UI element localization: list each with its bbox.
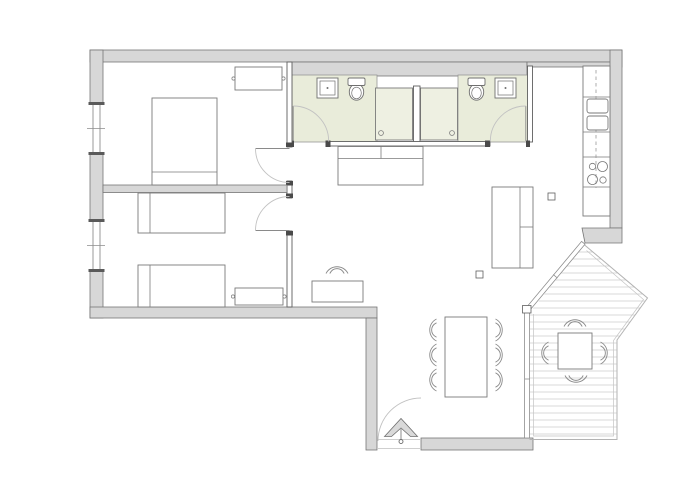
dining-chair-left-3-arc (430, 369, 437, 391)
wall-bathroom2-right (528, 66, 533, 142)
jamb-bath1-right (326, 141, 331, 148)
jamb-bedroom2-top (286, 194, 293, 199)
glass-wall-corner-post (523, 306, 532, 314)
dining-chair-left-1 (430, 319, 437, 341)
wall-bathroom-bottom (329, 142, 490, 147)
balcony-chair-top (564, 320, 586, 327)
wall-top-bathroom-block (290, 62, 527, 76)
dining-chair-left-2-arc (432, 348, 437, 362)
balcony-chair-bottom (565, 376, 587, 383)
balcony-chair-right-arc (601, 342, 608, 364)
window-bedroom2-sill-top (89, 219, 105, 222)
wall-right (610, 50, 622, 228)
dining-chair-left-1-arc (430, 319, 437, 341)
wall-bedroom-divider (103, 185, 287, 193)
wall-bottom-bedrooms (90, 307, 377, 318)
bed-single-2 (138, 265, 225, 307)
door-bedroom1-arc (256, 149, 290, 183)
sofa (338, 147, 423, 186)
kitchen-sink-basin-2 (587, 116, 608, 130)
dining-chair-left-2-arc (430, 344, 437, 366)
balcony-table (558, 333, 592, 369)
wall-top (90, 50, 622, 62)
chair-desk-living-arc (326, 267, 348, 274)
desk-living (312, 281, 363, 302)
dining-table (445, 317, 487, 397)
dining-chair-right-3-arc (496, 369, 503, 391)
dining-chair-left-3 (430, 369, 437, 391)
desk-bedroom2-knob-right (283, 295, 286, 298)
window-bedroom2-sill-bottom (89, 269, 105, 272)
dining-chair-right-2-arc (496, 348, 501, 362)
wall-bottom-living (421, 438, 533, 450)
jamb-bedroom1-top (286, 143, 293, 148)
desk-bedroom1-knob-right (282, 77, 285, 80)
wall-hall-upper (287, 62, 292, 147)
toilet1-tank (348, 78, 365, 86)
desk-bedroom1 (235, 67, 282, 90)
jamb-bath2-left (485, 141, 490, 148)
floor-marker-2 (476, 271, 483, 278)
toilet2-tank (468, 78, 485, 86)
dining-chair-right-3-arc (496, 373, 501, 387)
kitchen-sink-basin-1 (587, 99, 608, 113)
jamb-bedroom2-bottom (286, 231, 293, 236)
dining-chair-right-2-arc (496, 344, 503, 366)
shower1 (376, 88, 413, 140)
dining-chair-right-3 (496, 369, 503, 391)
dining-chair-left-3-arc (432, 373, 437, 387)
dining-chair-right-1-arc (496, 319, 503, 341)
balcony-chair-bottom-arc (565, 376, 587, 383)
balcony-chair-right-arc (601, 346, 606, 360)
glass-wall-vertical (525, 311, 530, 438)
wall-left (90, 50, 103, 318)
balcony-chair-left-arc (544, 346, 549, 360)
desk-bedroom1-knob-left (232, 77, 235, 80)
jamb-bath2-right (526, 141, 530, 148)
dining-chair-right-1 (496, 319, 503, 341)
sink2-tap (505, 87, 507, 89)
window-bedroom1-sill-bottom (89, 152, 105, 155)
dining-chair-left-1-arc (432, 323, 437, 337)
balcony-chair-left (542, 342, 549, 364)
dining-chair-left-2 (430, 344, 437, 366)
bed-single-1 (138, 193, 225, 233)
chair-desk-living-arc (330, 269, 344, 274)
door-bedroom2-arc (256, 197, 290, 231)
floor-marker-1 (548, 193, 555, 200)
balcony-chair-top-arc (564, 320, 586, 327)
dining-chair-right-2 (496, 344, 503, 366)
wall-shower-divider (414, 86, 421, 142)
desk-bedroom2 (235, 288, 283, 305)
floor-plan-page (0, 0, 700, 500)
wall-hall-lower (287, 231, 292, 307)
balcony-chair-right (601, 342, 608, 364)
wall-right-cap (582, 228, 622, 243)
entrance-arrow-dot (399, 440, 403, 444)
kitchen-island (492, 187, 533, 268)
window-bedroom1-sill-top (89, 102, 105, 105)
floor-plan-svg (0, 0, 700, 500)
shower2 (421, 88, 458, 140)
kitchen-counter (583, 66, 610, 216)
wall-entry-side (366, 318, 377, 450)
dining-chair-right-1-arc (496, 323, 501, 337)
sink1-tap (327, 87, 329, 89)
balcony-chair-left-arc (542, 342, 549, 364)
desk-bedroom2-knob-left (231, 295, 234, 298)
chair-desk-living (326, 267, 348, 274)
